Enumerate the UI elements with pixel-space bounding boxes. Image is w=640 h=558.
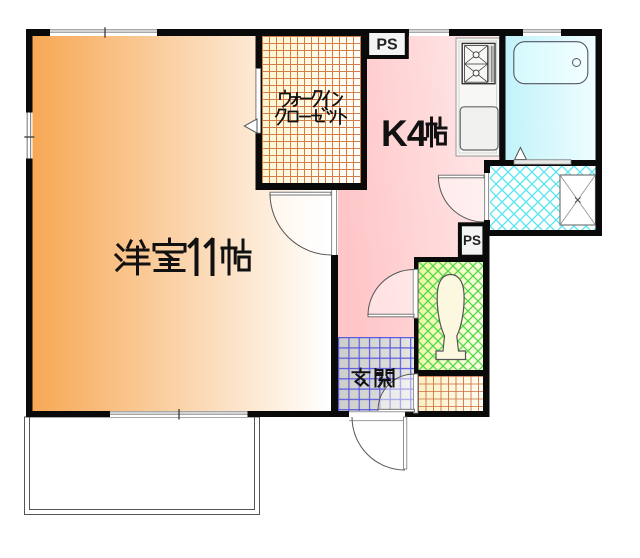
svg-text:PS: PS	[376, 37, 398, 54]
svg-text:K4: K4	[381, 113, 428, 154]
svg-text:PS: PS	[463, 233, 481, 248]
